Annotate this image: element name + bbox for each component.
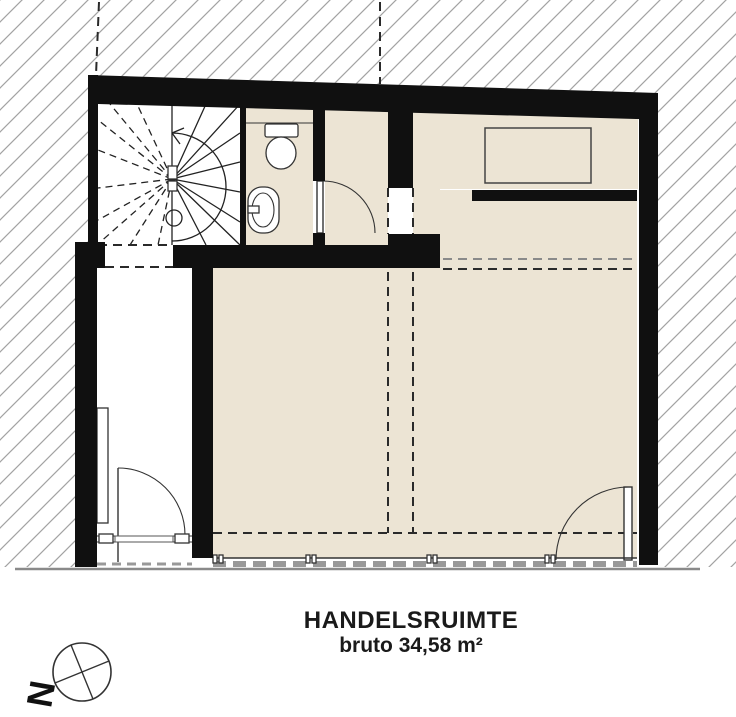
right-wall [639,93,658,565]
passage-opening [388,188,413,235]
back-room-floor [413,112,638,189]
vestibule-floor [325,108,388,245]
toilet-bowl-icon [266,137,296,169]
backroom-partition [472,190,637,201]
corridor-floor [97,268,192,558]
area-label: bruto 34,58 m² [304,634,519,658]
room-name-label: HANDELSRUIMTE [304,608,519,634]
stair-toilet-divider [240,104,246,245]
sink-tap-icon [248,206,259,213]
left-wall-upper [88,75,98,245]
wall-niche [97,408,108,523]
north-arrow-icon: N [19,643,111,710]
vestibule-backroom-wall [388,112,413,188]
floor-plan-page: N HANDELSRUIMTE bruto 34,58 m² [0,0,736,717]
corridor-wall [192,268,213,558]
toilet-tank-icon [265,124,298,137]
plan-caption: HANDELSRUIMTE bruto 34,58 m² [304,608,519,658]
shop-door-leaf [624,487,632,560]
left-wall-lower [75,242,97,567]
newel-post [168,166,177,179]
toilet-vestibule-wall [313,106,325,173]
toilet-door-leaf [317,181,323,233]
